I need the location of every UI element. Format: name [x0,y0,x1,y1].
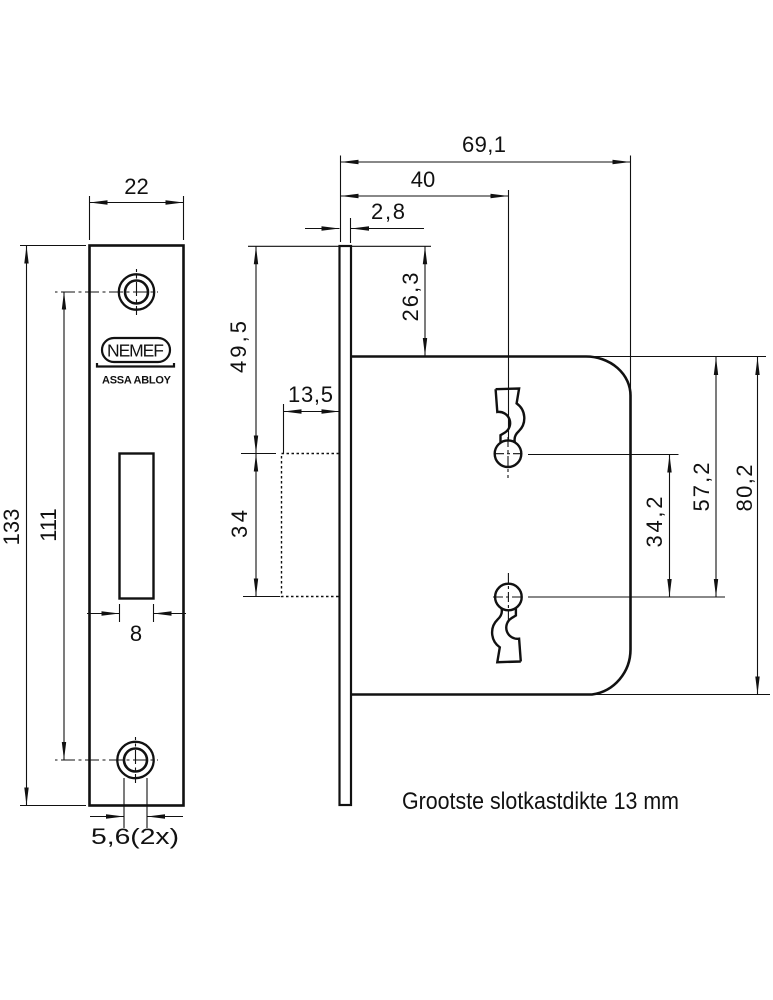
svg-text:8: 8 [130,621,142,646]
svg-text:22: 22 [124,174,148,199]
svg-text:5,6(2x): 5,6(2x) [91,824,179,849]
svg-text:111: 111 [36,508,61,541]
svg-text:ASSA ABLOY: ASSA ABLOY [102,375,172,387]
svg-text:80,2: 80,2 [732,465,757,512]
svg-text:NEMEF: NEMEF [107,341,164,361]
svg-text:40: 40 [411,167,435,192]
svg-text:26,3: 26,3 [398,273,423,322]
svg-text:2,8: 2,8 [371,199,405,224]
svg-text:49,5: 49,5 [226,321,251,373]
svg-text:133: 133 [0,509,24,546]
svg-text:13,5: 13,5 [288,382,333,407]
svg-text:Grootste slotkastdikte 13 mm: Grootste slotkastdikte 13 mm [402,788,679,815]
svg-text:57,2: 57,2 [689,463,714,512]
svg-text:34: 34 [227,510,252,538]
svg-text:34,2: 34,2 [642,497,667,548]
svg-text:69,1: 69,1 [462,132,506,157]
